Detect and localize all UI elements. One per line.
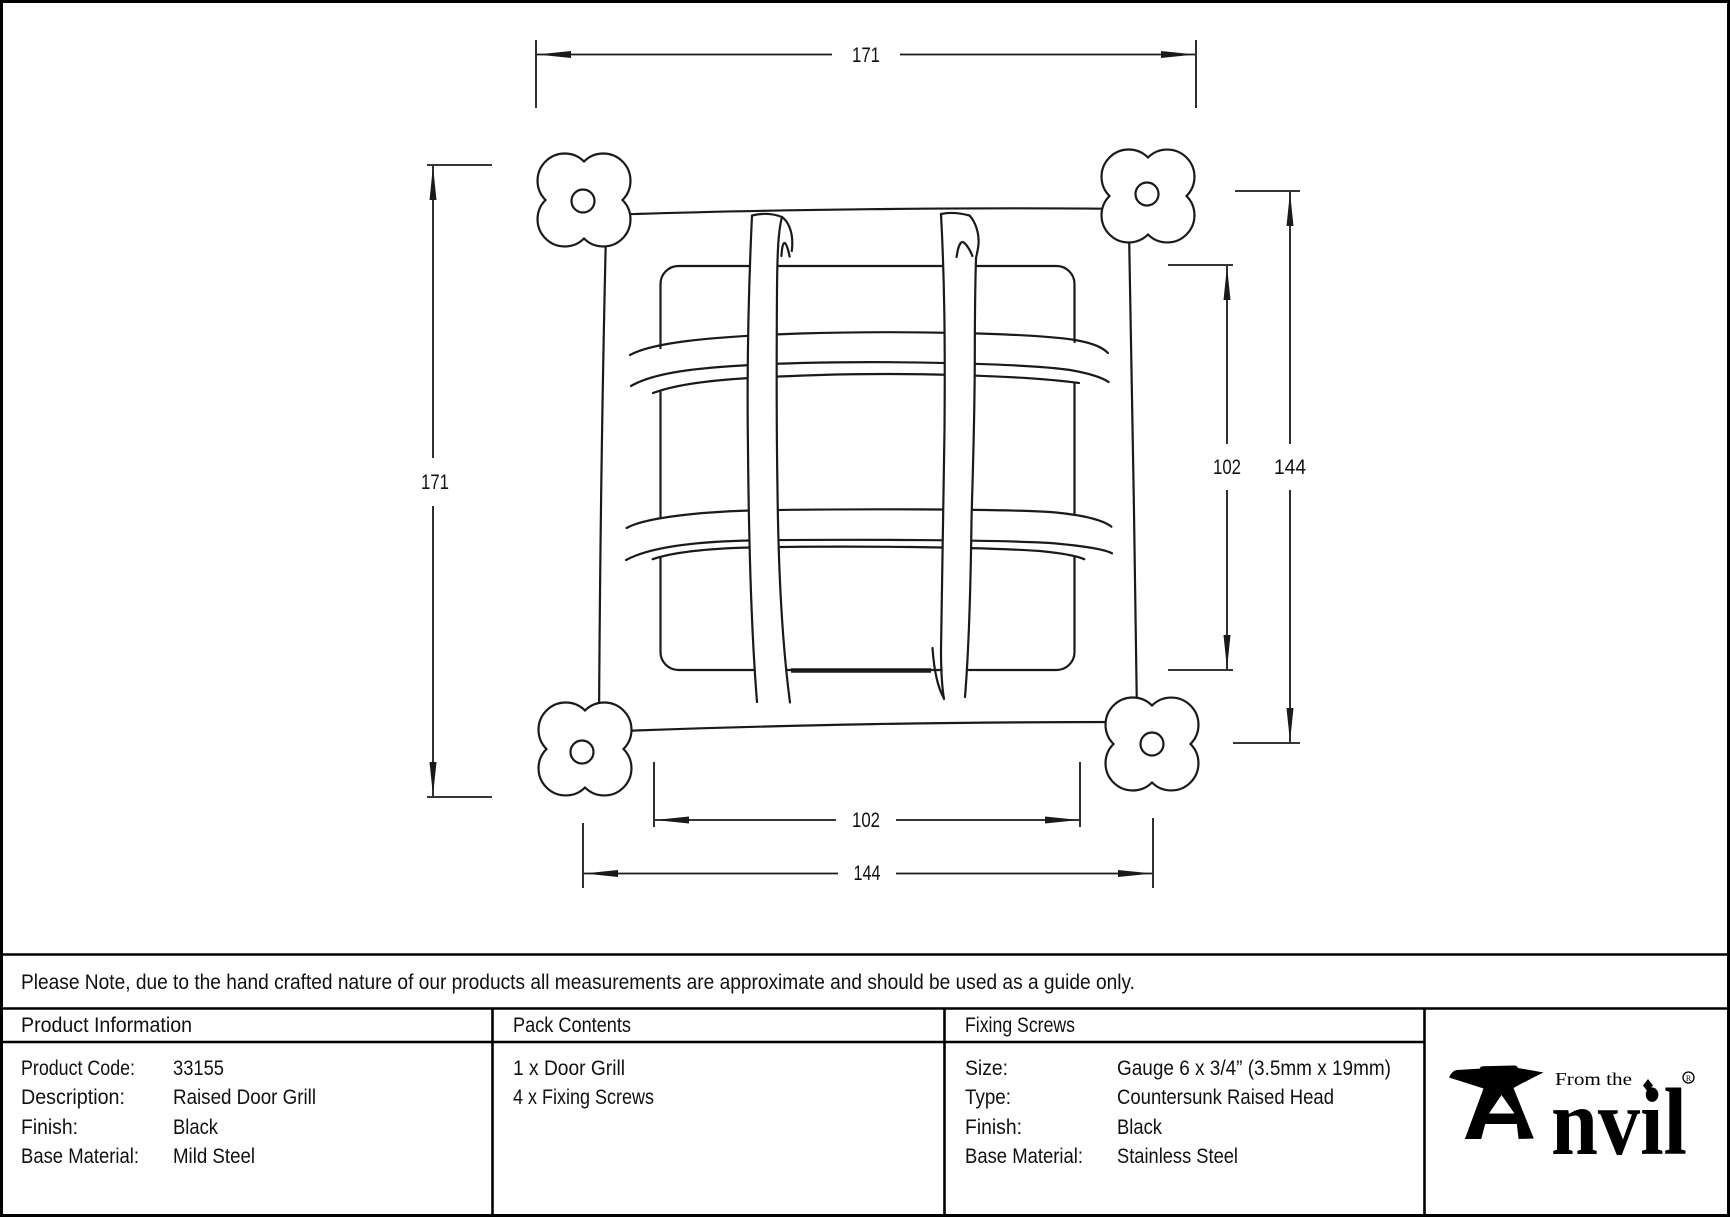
svg-text:Pack Contents: Pack Contents: [513, 1014, 631, 1037]
svg-text:Countersunk Raised Head: Countersunk Raised Head: [1117, 1086, 1334, 1109]
svg-text:Raised Door Grill: Raised Door Grill: [173, 1086, 316, 1109]
svg-text:1 x Door Grill: 1 x Door Grill: [513, 1057, 625, 1080]
svg-text:Size:: Size:: [965, 1057, 1008, 1080]
svg-text:Product Code:: Product Code:: [21, 1057, 135, 1080]
svg-text:102: 102: [1213, 456, 1241, 479]
svg-text:Black: Black: [173, 1116, 218, 1139]
svg-text:Black: Black: [1117, 1116, 1162, 1139]
svg-text:171: 171: [421, 471, 449, 494]
svg-text:Finish:: Finish:: [965, 1116, 1022, 1139]
svg-text:Base Material:: Base Material:: [965, 1145, 1083, 1168]
svg-text:nvil: nvil: [1551, 1069, 1687, 1175]
svg-text:Product Information: Product Information: [21, 1014, 192, 1037]
svg-text:144: 144: [854, 862, 881, 885]
svg-text:R: R: [1686, 1074, 1692, 1083]
svg-text:144: 144: [1274, 456, 1306, 479]
svg-text:Mild Steel: Mild Steel: [173, 1145, 255, 1168]
svg-text:Gauge 6 x 3/4” (3.5mm x 19mm): Gauge 6 x 3/4” (3.5mm x 19mm): [1117, 1057, 1391, 1080]
svg-text:Stainless Steel: Stainless Steel: [1117, 1145, 1238, 1168]
svg-text:Fixing Screws: Fixing Screws: [965, 1014, 1075, 1037]
svg-text:Type:: Type:: [965, 1086, 1011, 1109]
svg-text:Description:: Description:: [21, 1086, 125, 1109]
svg-text:Base Material:: Base Material:: [21, 1145, 139, 1168]
svg-text:4 x Fixing Screws: 4 x Fixing Screws: [513, 1086, 654, 1109]
svg-text:Please Note, due to the hand c: Please Note, due to the hand crafted nat…: [21, 971, 1135, 994]
svg-text:Finish:: Finish:: [21, 1116, 78, 1139]
svg-text:102: 102: [852, 809, 880, 832]
svg-text:33155: 33155: [173, 1057, 224, 1080]
svg-text:171: 171: [852, 44, 880, 67]
